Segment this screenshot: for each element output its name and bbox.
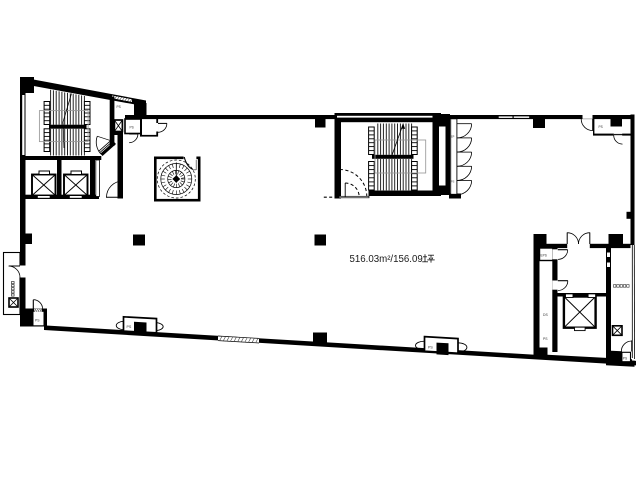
svg-text:EPS: EPS: [541, 254, 547, 258]
svg-text:DS: DS: [543, 313, 548, 317]
svg-text:PS: PS: [451, 180, 455, 184]
svg-text:PS: PS: [599, 125, 603, 129]
svg-text:PS: PS: [35, 319, 40, 323]
svg-text:PS: PS: [117, 105, 121, 109]
svg-text:PS: PS: [127, 325, 132, 329]
svg-text:EP: EP: [451, 135, 455, 139]
svg-text:516.03m²/156.09: 516.03m²/156.09: [350, 254, 423, 265]
svg-text:PS: PS: [543, 337, 548, 341]
svg-text:PS: PS: [428, 346, 433, 350]
svg-text:PS: PS: [130, 126, 134, 130]
